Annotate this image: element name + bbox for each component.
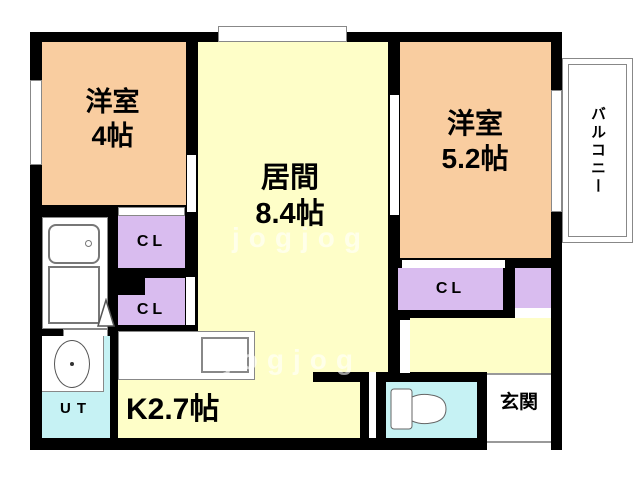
door-bedroom2 (390, 95, 399, 215)
closet-right: CL (398, 268, 503, 310)
bedroom2-name: 洋室 (447, 106, 503, 141)
kitchen-label: K2.7帖 (126, 384, 346, 426)
door-closet-upper (118, 207, 185, 216)
door-closet-right (402, 260, 505, 268)
closet-small-right (515, 268, 551, 308)
entrance-door-line (487, 441, 551, 443)
washbasin-drain-icon (70, 362, 74, 366)
bedroom2-size: 5.2帖 (442, 141, 509, 176)
wall-toilet-right (477, 373, 487, 438)
toilet-floor (386, 382, 477, 438)
entrance-label-text: 玄関 (500, 391, 538, 415)
hallway-floor (410, 318, 551, 373)
bathtub-drain-icon (85, 240, 92, 247)
door-bedroom1-living (187, 155, 196, 212)
bedroom1-size: 4帖 (91, 120, 133, 154)
floorplan: バルコニー UT (0, 0, 640, 480)
balcony-label: バルコニー (563, 59, 632, 242)
closet-lower-left-notch (145, 278, 185, 296)
closet-right-label: CL (436, 280, 465, 298)
bath-door-icon (96, 298, 116, 328)
balcony: バルコニー (562, 58, 633, 243)
wall-kitchen-right-b (376, 372, 386, 438)
closet-lower-left-label: CL (137, 301, 166, 319)
door-closet-lower-side (186, 277, 195, 325)
kitchen-label-text: K2.7帖 (126, 393, 219, 426)
watermark-lower: jogjog (224, 344, 362, 376)
door-closet-small (515, 308, 551, 318)
door-hallway (400, 320, 410, 373)
window-right (551, 90, 562, 212)
closet-lower-left: CL (118, 295, 185, 325)
entrance-label: 玄関 (487, 373, 551, 433)
wall-kitchen-left (110, 333, 118, 438)
bedroom1-label: 洋室 4帖 (45, 80, 180, 160)
living-name: 居間 (261, 160, 319, 196)
bath-washing-area (48, 266, 100, 324)
wall-ut-top (42, 329, 63, 336)
window-top (218, 26, 347, 42)
bedroom2-label: 洋室 5.2帖 (405, 96, 545, 186)
gap-kitchen-right (369, 372, 376, 438)
closet-upper-left-label: CL (137, 233, 166, 251)
window-left (30, 80, 42, 165)
washbasin-box (42, 336, 104, 392)
utility-label: UT (42, 396, 110, 420)
wall-kitchen-right-a (360, 372, 369, 438)
closet-upper-left: CL (118, 216, 185, 268)
watermark-upper: jogjog (232, 222, 370, 254)
bedroom1-name: 洋室 (86, 86, 140, 120)
entrance-opening (487, 438, 551, 450)
bathtub-icon (48, 224, 100, 264)
toilet-icon (388, 384, 474, 436)
